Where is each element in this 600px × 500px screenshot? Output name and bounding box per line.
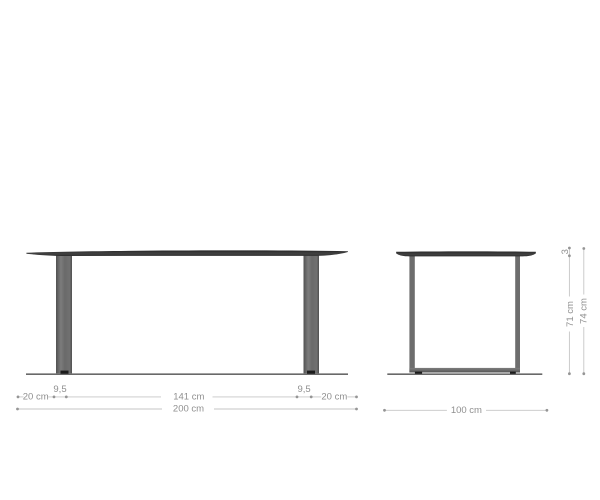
svg-text:9,5: 9,5: [297, 384, 310, 395]
svg-text:200 cm: 200 cm: [173, 404, 204, 415]
svg-text:71 cm: 71 cm: [565, 301, 576, 327]
svg-text:74 cm: 74 cm: [579, 298, 590, 324]
svg-text:3: 3: [560, 249, 571, 254]
svg-text:141 cm: 141 cm: [173, 391, 204, 402]
svg-text:9,5: 9,5: [53, 384, 66, 395]
svg-text:20 cm: 20 cm: [23, 391, 49, 402]
svg-text:100 cm: 100 cm: [451, 405, 482, 416]
svg-text:20 cm: 20 cm: [321, 391, 347, 402]
